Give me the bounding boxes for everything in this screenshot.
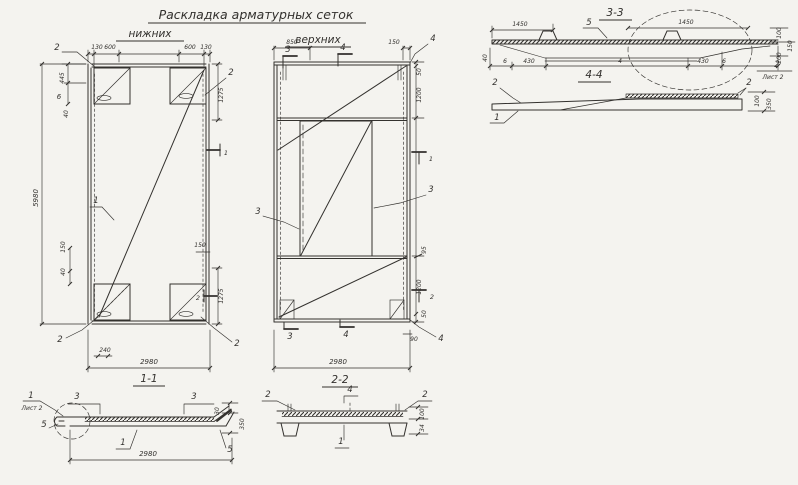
dim-150-right-33: 150 <box>787 40 794 52</box>
callout-3-left: 3 <box>255 207 260 217</box>
callout-2-left-22: 2 <box>265 390 270 400</box>
dim-1450-right: 1450 <box>678 19 693 26</box>
dim-350-right-44: 350 <box>766 98 773 110</box>
view-label-2-2: 2-2 <box>331 374 348 386</box>
section-1-1-annotations: 1 Лист 2 3 3 5 5 1 30 350 2980 <box>21 391 246 464</box>
dim-30-right-11: 30 <box>214 407 221 415</box>
section-1-1-linework <box>54 403 234 439</box>
callout-2-bottom-left: 2 <box>57 335 62 345</box>
dim-40-bottom-33: 40 <box>482 54 489 62</box>
callout-5-left-11: 5 <box>41 420 46 430</box>
section-2-2-linework <box>277 404 407 436</box>
dim-350-right-11: 350 <box>239 418 246 430</box>
plan-upper-flags: 3 4 3 4 1 2 <box>283 43 434 342</box>
section-2-2-profile: 2 4 2 1 100 34 <box>262 385 432 448</box>
label-6b-33: 6 <box>722 58 726 65</box>
dim-50-top-right: 50 <box>416 68 423 76</box>
callout-1-bottom-22: 1 <box>338 437 343 447</box>
label-6a-33: 6 <box>503 58 507 65</box>
dim-430b-33: 430 <box>697 58 709 65</box>
callout-5: 5 <box>586 18 591 28</box>
dim-90-bottom-right: 90 <box>410 336 418 343</box>
callout-1-top-11: 1 <box>28 391 33 401</box>
callout-4-top-right: 4 <box>430 34 435 44</box>
dim-2980-width: 2980 <box>140 358 158 366</box>
sheet-reference-top: 2 Лист 2 <box>757 60 792 81</box>
dim-1275-lower-right: 1275 <box>218 288 225 303</box>
flag-3-top: 3 <box>285 45 290 55</box>
dim-40-upper-left: 40 <box>63 110 70 118</box>
dim-445-left: 445 <box>59 72 66 84</box>
dim-150-mid-right: 150 <box>194 242 206 249</box>
callout-2-left-44: 2 <box>492 78 497 88</box>
dim-150-top: 150 <box>388 39 400 46</box>
drawing-title: Раскладка арматурных сеток <box>159 7 354 22</box>
subtitle-upper-meshes: верхних <box>295 34 341 46</box>
dim-100-right-33: 100 <box>776 27 783 39</box>
section-1-1-profile: 1 Лист 2 3 3 5 5 1 30 350 2980 <box>21 391 246 464</box>
sheet-2-reference: Лист 2 <box>762 74 784 81</box>
sheet-2-reference-11: Лист 2 <box>21 405 43 412</box>
label-4-33: 4 <box>618 58 622 65</box>
callout-1-center: 1 <box>93 196 98 206</box>
dim-1200-upper-right: 1200 <box>416 87 423 102</box>
dim-150-lower-left: 150 <box>60 241 67 253</box>
callout-2-top-left: 2 <box>54 43 59 53</box>
flag-3-bottom: 3 <box>287 332 292 342</box>
section-label-3-3: 3-3 <box>606 7 623 19</box>
callout-4-top-22: 4 <box>347 385 352 395</box>
dim-430a-33: 430 <box>523 58 535 65</box>
flag-4-bottom: 4 <box>343 330 348 340</box>
section-3-3-linework <box>492 10 778 90</box>
plan-lower-callouts: 2 2 1 2 2 <box>54 43 239 349</box>
reinforcement-layout-drawing: Раскладка арматурных сеток нижних верхни… <box>0 0 798 485</box>
flag-t2-label: 2 <box>430 293 434 301</box>
dim-130-top-left: 130 <box>91 44 103 51</box>
flag-2-label: 2 <box>196 294 200 302</box>
flag-1-label: 1 <box>224 149 228 157</box>
dim-600-top-left: 600 <box>104 44 116 51</box>
plan-lower-meshes: 1 2 130 600 600 130 445 6 40 5980 150 40 <box>32 43 240 386</box>
section-4-4: 4-4 2 1 2 100 350 <box>490 69 775 123</box>
dim-2980-bottom-11: 2980 <box>139 450 157 458</box>
callout-2-bottom-right: 2 <box>234 339 239 349</box>
dim-130-top-right: 130 <box>200 44 212 51</box>
title-block: Раскладка арматурных сеток нижних верхни… <box>116 7 366 47</box>
section-label-4-4: 4-4 <box>585 69 602 81</box>
callout-1-left-44: 1 <box>494 113 499 123</box>
subtitle-lower-meshes: нижних <box>128 28 172 40</box>
drawing-sheet: Раскладка арматурных сеток нижних верхни… <box>0 0 798 485</box>
dim-100-right-44: 100 <box>754 95 761 107</box>
dim-1450-left: 1450 <box>512 21 527 28</box>
flag-3a-11: 3 <box>74 392 79 402</box>
dim-34-right-22: 34 <box>419 424 426 432</box>
dim-240-bottom: 240 <box>99 347 111 354</box>
plan-upper-callouts: 4 3 3 4 <box>255 34 443 344</box>
dim-1200-lower-right: 1200 <box>416 279 423 294</box>
callout-4-bottom-right: 4 <box>438 334 443 344</box>
callout-2-top-right: 2 <box>228 68 233 78</box>
callout-1-mid-11: 1 <box>120 438 125 448</box>
callout-2-right-22: 2 <box>422 390 427 400</box>
callout-2-sheet: 2 <box>774 60 779 70</box>
dim-1275-upper-right: 1275 <box>218 87 225 102</box>
label-6-left: 6 <box>57 93 62 101</box>
dim-5980-height: 5980 <box>32 189 40 207</box>
view-label-1-1: 1-1 <box>140 373 157 385</box>
flag-4-top: 4 <box>340 43 345 53</box>
plan-lower-linework <box>88 64 209 324</box>
plan-upper-linework <box>274 62 410 322</box>
section-4-4-annotations: 2 1 2 100 350 <box>490 78 775 123</box>
dim-40-lower-left: 40 <box>60 268 67 276</box>
dim-50-bottom-right: 50 <box>421 310 428 318</box>
dim-600-top-right: 600 <box>184 44 196 51</box>
dim-100-right-22: 100 <box>419 408 426 420</box>
callout-3-right: 3 <box>428 185 433 195</box>
section-flag-1: 1 <box>207 144 228 157</box>
dim-95-right: 95 <box>421 246 428 254</box>
flag-3b-11: 3 <box>191 392 196 402</box>
plan-upper-meshes: 3 4 3 4 1 2 850 150 50 1200 95 12 <box>255 34 443 387</box>
dim-850-top: 850 <box>286 39 298 46</box>
plan-lower-dimensions: 130 600 600 130 445 6 40 5980 150 40 127… <box>32 44 225 372</box>
flag-t1-label: 1 <box>429 155 433 163</box>
callout-2-right-44: 2 <box>746 78 751 88</box>
dim-2980-width-upper: 2980 <box>329 358 347 366</box>
section-4-4-linework <box>492 88 746 110</box>
